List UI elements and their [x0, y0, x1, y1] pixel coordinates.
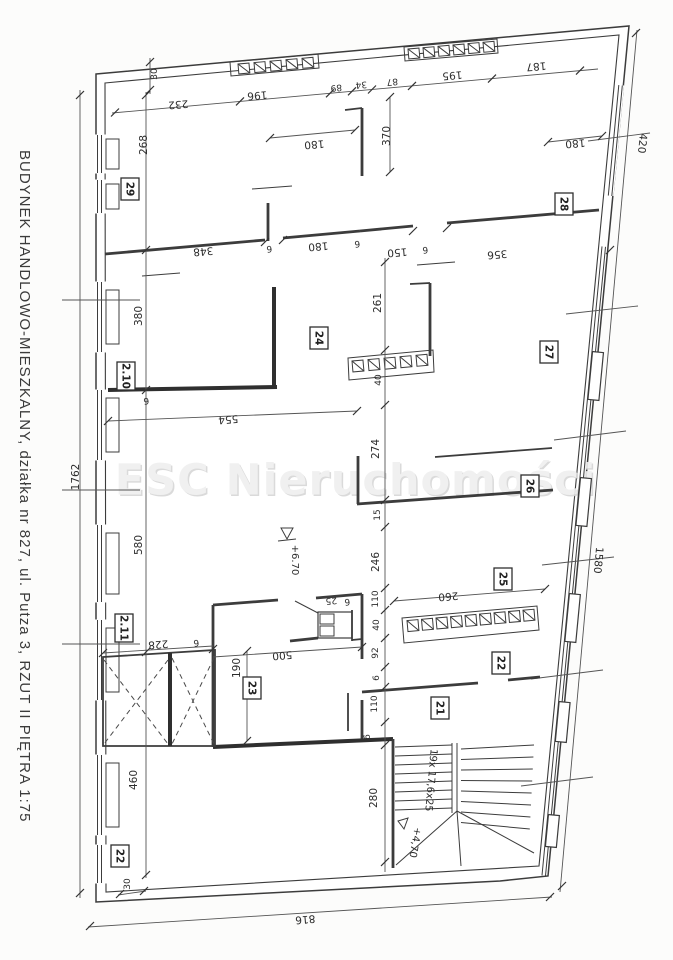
dim-label: 348: [193, 244, 214, 258]
svg-text:29: 29: [124, 182, 136, 197]
svg-text:23: 23: [246, 681, 258, 696]
dim-label: 89: [330, 82, 343, 93]
svg-text:2.11: 2.11: [118, 615, 130, 641]
dim-label: 110: [371, 590, 381, 607]
dim-label: 30: [123, 878, 133, 890]
room-label-23: 23: [243, 677, 261, 699]
dim-label: 34: [355, 79, 368, 90]
svg-text:26: 26: [524, 479, 536, 494]
room-label-25: 25: [494, 568, 512, 590]
room-label-2-10: 2.10: [117, 362, 135, 390]
dim-label: 110: [370, 695, 380, 712]
dim-label: 195: [442, 68, 463, 82]
dim-label: 580: [133, 535, 145, 555]
level-value: +6.70: [289, 545, 300, 576]
dim-label: 180: [304, 137, 325, 151]
dim-label: 6: [363, 734, 373, 740]
dim-label: 25: [325, 595, 337, 606]
dim-label: 6: [372, 675, 382, 681]
svg-text:2.10: 2.10: [120, 363, 132, 389]
dim-label: 40: [372, 619, 382, 631]
dim-label: 500: [272, 648, 293, 662]
room-label-28: 28: [555, 193, 573, 215]
dim-label: 1580: [591, 546, 605, 574]
dim-label: 6: [193, 637, 200, 647]
dim-label: 190: [231, 658, 243, 678]
svg-text:22: 22: [114, 849, 126, 864]
room-label-22-left: 22: [111, 845, 129, 867]
dim-label: 554: [217, 412, 238, 426]
dim-label: 260: [438, 589, 459, 603]
room-label-22-right: 22: [492, 652, 510, 674]
dim-label: 370: [381, 126, 393, 146]
dim-label: 232: [168, 97, 189, 111]
room-label-2-11: 2.11: [115, 614, 133, 642]
dim-label: 280: [368, 788, 380, 808]
dim-label: 15: [373, 509, 383, 520]
dim-label: 1762: [70, 464, 82, 491]
dim-label: 380: [133, 306, 145, 326]
dim-label: 180: [565, 136, 586, 150]
dim-label: 228: [148, 637, 169, 651]
room-label-26: 26: [521, 475, 539, 497]
dim-label: 187: [526, 59, 547, 73]
dim-label: 356: [486, 247, 507, 261]
room-label-29: 29: [121, 178, 139, 200]
svg-text:24: 24: [313, 331, 325, 346]
svg-text:21: 21: [434, 701, 446, 716]
dim-label: 40: [374, 374, 384, 386]
dim-label: 274: [370, 439, 382, 459]
dim-label: 30: [150, 68, 160, 80]
dim-label: 196: [246, 88, 267, 102]
room-label-24: 24: [310, 327, 328, 349]
dim-label: 180: [308, 239, 329, 253]
dim-label: 6: [143, 395, 150, 405]
room-label-21: 21: [431, 697, 449, 719]
svg-text:27: 27: [543, 345, 555, 360]
dim-label: 6: [344, 596, 351, 606]
dim-label: 460: [128, 770, 140, 790]
room-label-27: 27: [540, 341, 558, 363]
scanned-floorplan-page: BUDYNEK HANDLOWO-MIESZKALNY, działka nr …: [0, 0, 673, 960]
dim-label: 6: [354, 238, 361, 248]
dim-label: 268: [138, 135, 150, 155]
dim-label: 261: [372, 293, 384, 313]
dim-label: 6: [266, 243, 273, 253]
floor-plan-drawing: ESC Nieruchomości ESC Nieruchomości: [0, 0, 673, 960]
svg-text:22: 22: [495, 656, 507, 671]
svg-text:28: 28: [558, 197, 570, 212]
dim-label: 6: [422, 244, 429, 254]
dim-label: 246: [370, 552, 382, 572]
dim-label: 150: [387, 245, 408, 259]
svg-text:25: 25: [497, 572, 509, 587]
dim-label: 816: [294, 912, 315, 926]
dim-label: 420: [635, 133, 649, 154]
dim-label: 92: [371, 647, 381, 658]
dim-label: 87: [386, 76, 398, 87]
